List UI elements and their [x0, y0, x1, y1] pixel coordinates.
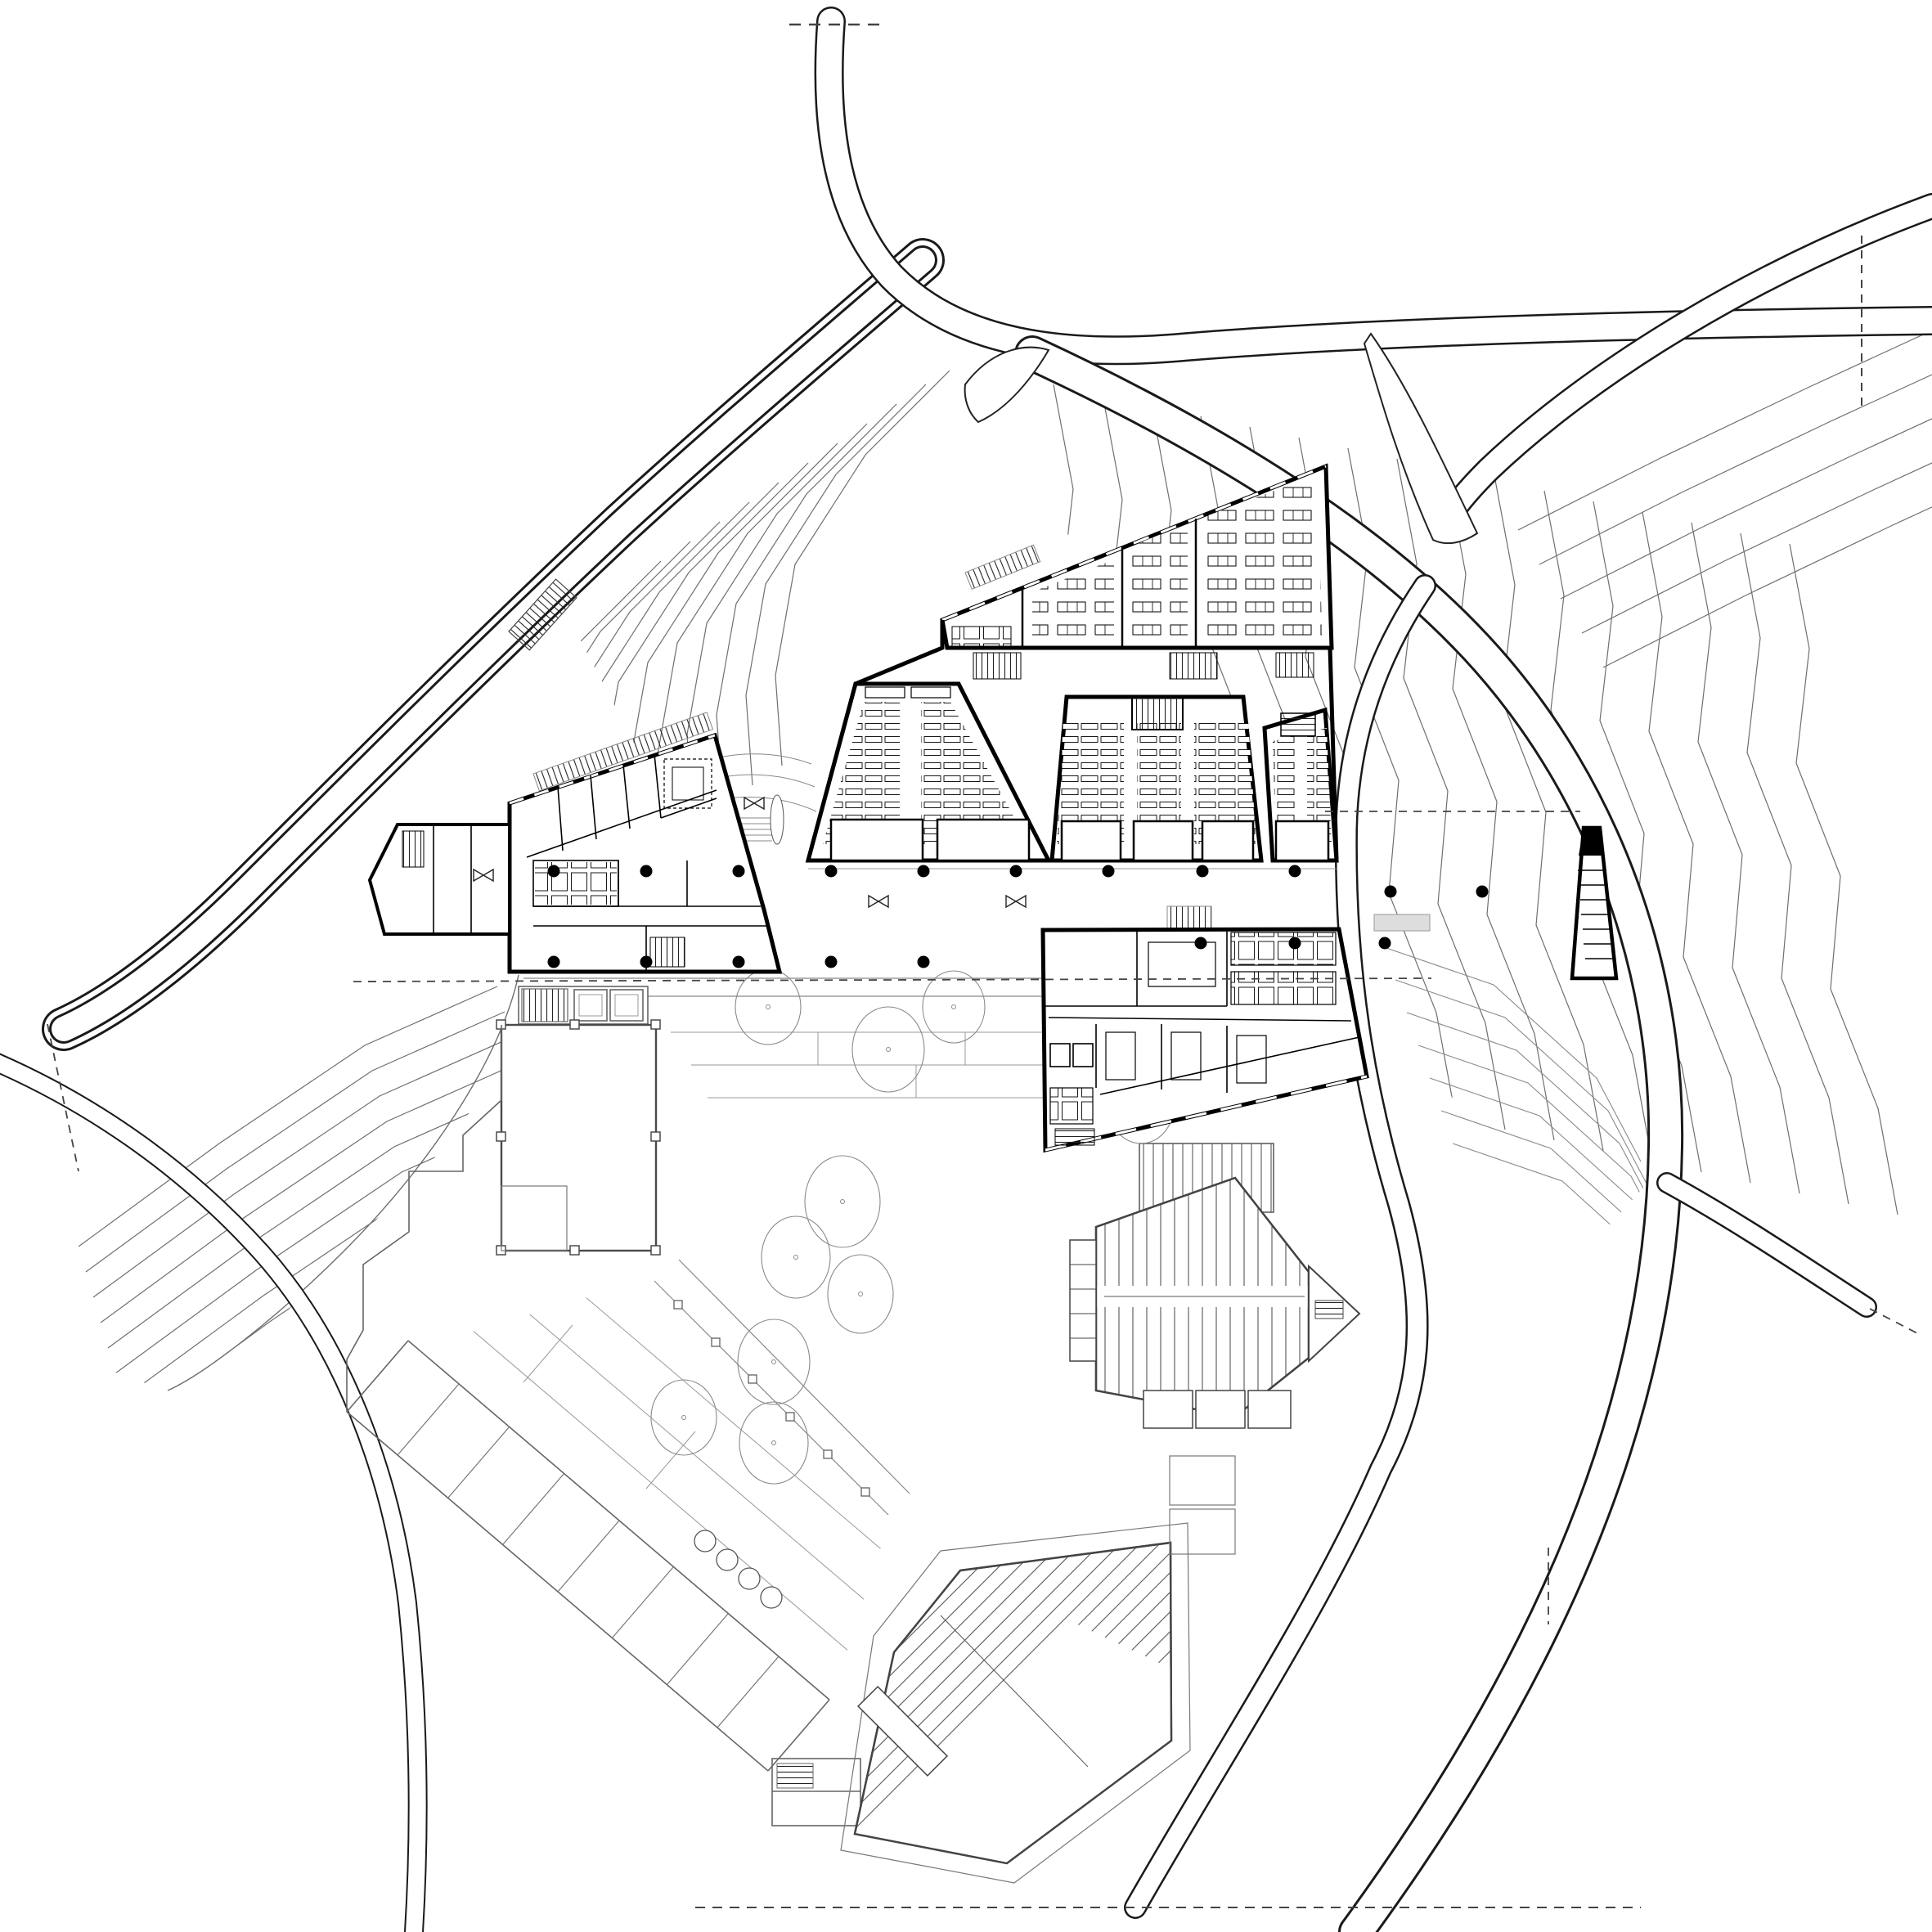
foyer-stair	[1276, 653, 1314, 677]
round-column	[694, 1530, 716, 1552]
tree-trunk	[841, 1200, 845, 1204]
wc-cells	[952, 627, 1011, 646]
column-dot	[918, 956, 930, 968]
contour-line	[1741, 533, 1849, 1204]
column-dot	[825, 956, 838, 968]
backstage-room	[1134, 821, 1193, 860]
wing-end-stair	[777, 1764, 813, 1788]
escalator-to-hall	[965, 545, 1040, 589]
contour-line	[79, 986, 497, 1247]
wc-cells	[535, 862, 617, 905]
bowtie-valve	[744, 798, 764, 809]
tree-trunk	[682, 1416, 686, 1420]
tree	[852, 1007, 924, 1092]
auditorium-2	[1052, 697, 1261, 860]
tree-trunk	[952, 1005, 956, 1009]
column-dot	[1476, 886, 1489, 898]
tree-trunk	[772, 1441, 776, 1445]
lens-planter	[771, 795, 784, 844]
tree-trunk	[887, 1048, 891, 1052]
tree-trunk	[766, 1005, 771, 1009]
tree	[762, 1216, 830, 1298]
road-southwest-loop	[0, 1062, 418, 1932]
bowtie-valve	[869, 896, 888, 907]
backstage-room	[1276, 821, 1328, 860]
column-dot	[1197, 865, 1209, 878]
stage	[865, 687, 905, 698]
contour-line	[1582, 434, 1932, 633]
diagonal-garden-terraces	[417, 1235, 913, 1689]
auditorium-3	[1265, 710, 1337, 860]
column-dot	[1379, 937, 1391, 950]
road-northeast-branch	[1449, 206, 1932, 515]
foyer-stair	[1170, 653, 1217, 679]
stair	[402, 831, 424, 867]
contour-line	[152, 1240, 571, 1500]
column-dot	[1289, 937, 1301, 950]
backstage-room	[1202, 821, 1253, 860]
column-dot	[1103, 865, 1115, 878]
tree-trunk	[859, 1292, 863, 1296]
tree-trunk	[772, 1360, 776, 1364]
contour-line	[1518, 330, 1932, 530]
north-tower-block	[496, 1020, 660, 1255]
contour-line	[1692, 523, 1799, 1193]
backstage-room	[831, 820, 923, 860]
column-dot	[640, 865, 653, 878]
wc-cells	[1050, 1088, 1093, 1124]
round-column	[761, 1587, 782, 1608]
column-dot	[640, 956, 653, 968]
round-column	[717, 1549, 738, 1570]
site-plan-page	[0, 0, 1932, 1932]
seminar-tables	[1204, 474, 1322, 638]
contour-line	[1446, 470, 1554, 1140]
stair	[650, 937, 685, 967]
column-dot	[1289, 865, 1301, 878]
wc-stalls	[1231, 932, 1336, 965]
column-dot	[548, 956, 560, 968]
drop-off-pad	[1374, 914, 1430, 931]
column-dot	[733, 956, 745, 968]
round-column	[739, 1568, 760, 1589]
site-plan-canvas	[0, 0, 1932, 1932]
tree	[651, 1380, 717, 1455]
foyer-stair	[973, 653, 1021, 679]
column-dot	[548, 865, 560, 878]
stage	[911, 687, 950, 698]
backstage-room	[1062, 821, 1121, 860]
east-service-block	[1043, 929, 1367, 1150]
prow-stair	[1315, 1301, 1343, 1319]
column-dot	[733, 865, 745, 878]
small-stair	[1167, 906, 1211, 929]
stage-strip	[1070, 1240, 1096, 1361]
auditorium-1	[808, 684, 1049, 860]
dashed-datum-line	[1870, 1309, 1917, 1333]
stair-elevator-core	[519, 986, 648, 1024]
contour-line	[167, 1291, 586, 1551]
colonnade-walk	[654, 1260, 910, 1515]
traffic-island-east	[1364, 334, 1477, 543]
control-booth	[1132, 697, 1183, 730]
road-southeast-stub	[1667, 1183, 1867, 1307]
column-dot	[1010, 865, 1022, 878]
west-annex	[370, 824, 510, 934]
traffic-island-fork	[965, 348, 1049, 422]
backstage-room	[937, 820, 1029, 860]
contour-line	[160, 1265, 578, 1525]
column-dot	[1195, 937, 1207, 950]
column-dot	[918, 865, 930, 878]
tree-trunk	[794, 1256, 798, 1260]
seminar-hall	[942, 466, 1332, 648]
concert-hall-east	[1070, 1176, 1359, 1428]
tree	[739, 1402, 808, 1484]
contour-line	[1561, 399, 1932, 599]
stair	[1055, 1129, 1094, 1145]
wc-stalls	[1231, 972, 1336, 1004]
tree	[738, 1319, 810, 1404]
contour-line	[108, 1088, 527, 1348]
southwest-hill-outline	[168, 975, 519, 1391]
tree	[805, 1156, 880, 1247]
bowtie-valve	[1006, 896, 1026, 907]
contour-line	[1397, 459, 1505, 1130]
column-dot	[825, 865, 838, 878]
contour-line	[1790, 544, 1898, 1215]
tree	[828, 1255, 893, 1333]
road-top-approach	[829, 21, 1932, 350]
stair-pocket	[1281, 713, 1315, 736]
column-dot	[1385, 886, 1397, 898]
